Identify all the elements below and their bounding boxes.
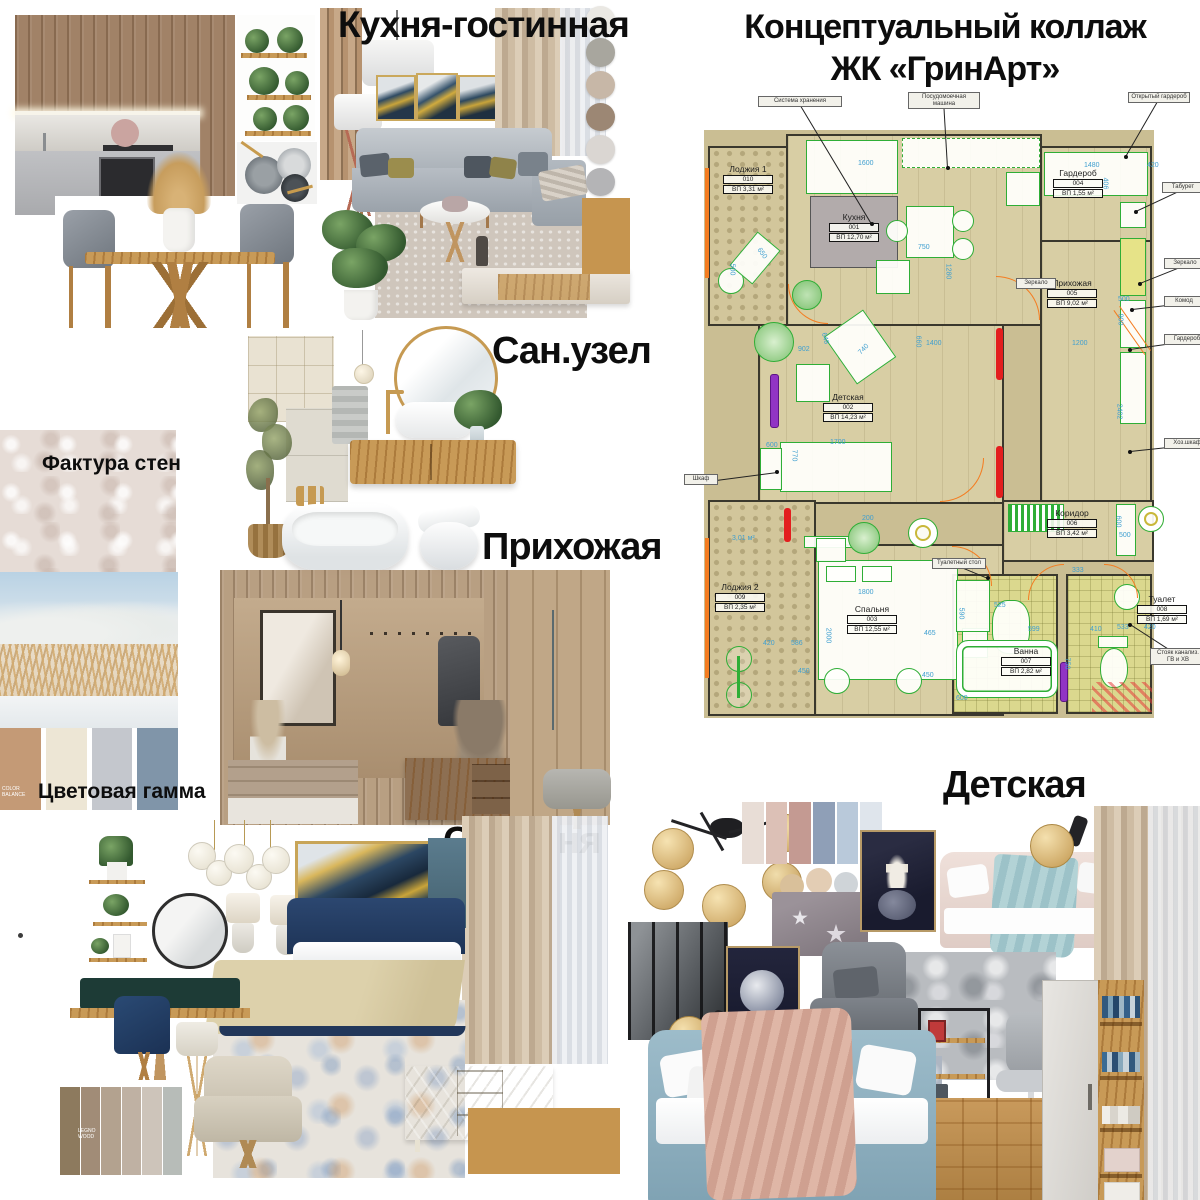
shelf-3 (245, 131, 311, 136)
bathtub-rim (292, 512, 398, 546)
kids-palette-swatch (742, 802, 764, 864)
room-name: Спальня (842, 604, 902, 614)
kids-palette-swatch (837, 802, 859, 864)
vanity-split (430, 444, 432, 480)
blue-daybed (648, 1010, 936, 1200)
dimension-label: 750 (1063, 658, 1070, 670)
plant-4 (285, 71, 309, 95)
plant-5 (253, 107, 277, 131)
plan-kids-plant (754, 322, 794, 362)
bubble-chandeliers (188, 820, 292, 898)
blue-daybed-pillow-3 (855, 1043, 918, 1096)
dimension-label: 1280 (944, 264, 951, 280)
snake-plant-pot (107, 862, 127, 880)
dimension-label: 333 (1072, 567, 1084, 574)
plant-2 (277, 27, 303, 53)
callout-target-dot (1130, 308, 1134, 312)
faucet-spout (386, 390, 404, 394)
dimension-label: 600 (956, 695, 968, 702)
room-name: Лоджия 1 (718, 164, 778, 174)
towel-grey (332, 386, 368, 444)
dimension-label: 420 (1144, 624, 1156, 631)
kitchen-cutting-board (111, 119, 139, 147)
pink-blanket (701, 1007, 857, 1200)
bulb-glass (354, 364, 374, 384)
plan-callout: Зеркало (1016, 278, 1056, 289)
plan-robot-vacuum (1138, 506, 1164, 532)
toilet-bowl (420, 522, 478, 570)
wall-taps-gold (296, 486, 324, 506)
dining-chair-right-legs (247, 262, 289, 328)
tableware-photo (237, 142, 317, 204)
room-area: ВП 14,23 м² (823, 413, 873, 422)
sofa-pillow-olive1 (388, 158, 414, 178)
dimension-label: 1800 (858, 589, 874, 596)
dimension-label: 1600 (858, 160, 874, 167)
room-label: Туалет008ВП 1,69 м² (1132, 594, 1192, 624)
living-palette-circle (586, 71, 615, 99)
room-label: Детская002ВП 14,23 м² (818, 392, 878, 422)
plan-sofa (806, 140, 898, 194)
bedroom-palette-strip (60, 1087, 80, 1175)
tv-console-doors (498, 274, 590, 300)
winter-grass (0, 644, 178, 700)
plan-dining-table (906, 206, 954, 258)
storage-box-white (1104, 1182, 1140, 1200)
wall-hung-toilet (412, 504, 484, 572)
armchair-beige (194, 1056, 302, 1168)
callout-target-dot (1124, 155, 1128, 159)
page-title-line1: Концептуальный коллаж (700, 8, 1190, 47)
toy-2 (806, 868, 832, 894)
ficus-pot (344, 290, 378, 320)
hallway-pendant-globe (332, 650, 350, 676)
plan-hall-wardrobe (1120, 352, 1146, 424)
white-jug (163, 208, 195, 252)
plan-red-hatch (1092, 682, 1152, 712)
ballerina-art (860, 830, 936, 932)
shelf-2 (247, 95, 311, 100)
bed-navy (215, 898, 465, 1038)
room-label: Лоджия 1010ВП 3,31 м² (718, 164, 778, 194)
art-panel-2 (416, 73, 458, 121)
plan-callout: Зеркало (1164, 258, 1200, 269)
plan-tv-stand-kitchen (876, 260, 910, 294)
plan-callout: Хоз.шкаф (1164, 438, 1200, 449)
olive-trunk (266, 478, 270, 528)
color-balance-note: COLOR BALANCE (2, 786, 30, 798)
wood-sample-bedroom (468, 1108, 620, 1174)
room-area: ВП 9,02 м² (1047, 299, 1097, 308)
plan-chair-1 (952, 210, 974, 232)
kids-sheer (1148, 806, 1200, 1200)
dimension-label: 900 (1116, 314, 1123, 326)
shelf-1 (241, 53, 307, 58)
hallway-hooks (370, 632, 480, 635)
dimension-label: 450 (922, 672, 934, 679)
room-area: ВП 2,35 м² (715, 603, 765, 612)
books-row-2 (1102, 1052, 1140, 1072)
dimension-label: 2402 (1115, 404, 1122, 420)
amber-globe-3 (644, 870, 684, 910)
dimension-label: 500 (728, 264, 735, 276)
room-number: 002 (823, 403, 873, 412)
dimension-label: 590 (957, 608, 964, 620)
bedroom-palette-strip (163, 1087, 183, 1175)
sconce-top (1030, 810, 1096, 868)
vanity-body (350, 440, 516, 484)
room-area: ВП 1,69 м² (1137, 615, 1187, 624)
glass-bubble-5 (262, 846, 290, 874)
bedroom-sheer (552, 816, 608, 1064)
section-title-kids: Детская (943, 764, 1086, 807)
callout-target-dot (1128, 450, 1132, 454)
room-area: ВП 1,55 м² (1053, 189, 1103, 198)
plan-toilet-tank (1098, 636, 1128, 648)
books-row-3 (1102, 1106, 1140, 1124)
plan-vacuum-circle (908, 518, 938, 548)
callout-target-dot (1134, 210, 1138, 214)
dimension-label: 420 (1147, 162, 1159, 169)
dimension-label: 1400 (926, 340, 942, 347)
plan-bedroom-plant (848, 522, 880, 554)
hallway-pendant-1 (340, 600, 342, 655)
living-palette-circle (586, 135, 615, 163)
kitchen-cooktop (103, 145, 173, 151)
room-name: Гардероб (1048, 168, 1108, 178)
legno-wood-note: LEGNO WOOD (78, 1128, 102, 1140)
plant-6 (283, 105, 309, 131)
dimension-label: 600 (766, 442, 778, 449)
gold-spoon-icon (240, 141, 263, 158)
floor-plan: Лоджия 1010ВП 3,31 м²Кухня001ВП 12,70 м²… (700, 108, 1168, 720)
room-number: 004 (1053, 179, 1103, 188)
plant-3 (249, 67, 279, 95)
room-name: Кухня (824, 212, 884, 222)
plan-radiator-3 (784, 508, 791, 542)
plan-callout: Гардероб (1164, 334, 1200, 345)
section-title-bathroom: Сан.узел (492, 330, 651, 373)
blue-throw (989, 854, 1078, 958)
callout-target-dot (1138, 282, 1142, 286)
books-row-1 (1102, 996, 1140, 1018)
room-name: Коридор (1042, 508, 1102, 518)
dimension-label: 2000 (824, 628, 831, 644)
navy-chair (114, 996, 170, 1054)
living-palette-circle (586, 168, 615, 196)
plan-dressing-table (816, 538, 846, 562)
white-pot-jar (113, 934, 131, 958)
plan-chair-3 (886, 220, 908, 242)
bedroom-shelf-1 (89, 880, 145, 884)
concept-collage: Концептуальный коллаж ЖК «ГринАрт» (0, 0, 1200, 1200)
room-number: 006 (1047, 519, 1097, 528)
room-label: Ванна007ВП 2,82 м² (996, 646, 1056, 676)
callout-target-dot (1128, 623, 1132, 627)
plan-bed-pillow-2 (862, 566, 892, 582)
living-palette-circle (586, 103, 615, 131)
bathroom-vanity (350, 440, 516, 490)
dining-chair-left-legs (69, 266, 111, 328)
loggia1-window-frame (705, 168, 709, 278)
art-panel-3 (458, 75, 498, 121)
plan-bed-bench-1 (824, 668, 850, 694)
plan-callout: Стояк канализ. ГВ и ХВ (1150, 648, 1200, 665)
hallway-table-lamp (452, 700, 508, 764)
armchair-seat (194, 1096, 302, 1142)
bedroom-palette-strip (142, 1087, 162, 1175)
grey-armchair-pillow (833, 966, 880, 1000)
sofa-pillow-dark2 (464, 156, 492, 178)
dimension-label: 600 (1114, 516, 1121, 528)
room-number: 007 (1001, 657, 1051, 666)
plant-1 (245, 29, 269, 53)
pouf-cushion (543, 769, 611, 809)
section-title-kitchen-living: Кухня-гостинная (338, 4, 629, 46)
floor-lamp2-shade (176, 1022, 218, 1056)
dining-set-photo (55, 196, 305, 338)
room-area: ВП 3,42 м² (1047, 529, 1097, 538)
dimension-label: 599 (1028, 626, 1040, 633)
pendant-bulb (352, 330, 374, 388)
plan-callout: Открытый гардероб (1128, 92, 1190, 103)
callout-target-dot (986, 576, 990, 580)
bathtub (282, 504, 408, 574)
section-title-color-scheme: Цветовая гамма (38, 780, 206, 804)
art-panel-1 (376, 75, 416, 121)
succulent-1 (91, 938, 109, 954)
dimension-label: 902 (798, 346, 810, 353)
dimension-label: 750 (918, 244, 930, 251)
kids-palette-swatch (789, 802, 811, 864)
dining-table-legs (107, 262, 253, 328)
bedroom-shelf-2 (93, 922, 147, 926)
books-shelf-line-4 (1100, 1174, 1142, 1178)
dimension-label: 586 (791, 640, 803, 647)
kids-palette-swatch (813, 802, 835, 864)
vanity-plant-leaves (454, 390, 502, 430)
plan-bed-pillow-1 (826, 566, 856, 582)
room-name: Ванна (996, 646, 1056, 656)
bedroom-palette-strip (122, 1087, 142, 1175)
ficus-leaves-3 (332, 248, 388, 288)
plan-callout: Комод (1164, 296, 1200, 307)
wheat-bouquet (147, 152, 211, 214)
coffee-table-decor (442, 196, 468, 212)
room-area: ВП 12,55 м² (847, 625, 897, 634)
room-name: Лоджия 2 (710, 582, 770, 592)
pink-daybed-pillow-1 (946, 863, 990, 898)
room-label: Спальня003ВП 12,55 м² (842, 604, 902, 634)
dried-flowers-vase (250, 700, 286, 766)
armchair-legs (208, 1140, 288, 1168)
plan-radiator-1 (996, 328, 1003, 380)
dimension-label: 500 (1118, 296, 1130, 303)
ballerina-figure (886, 854, 908, 888)
room-label: Гардероб004ВП 1,55 м² (1048, 168, 1108, 198)
section-title-hallway: Прихожая (482, 526, 662, 569)
dimension-label: 660 (914, 336, 921, 348)
room-area: ВП 2,82 м² (1001, 667, 1051, 676)
callout-target-dot (946, 166, 950, 170)
art-triptych (376, 73, 494, 119)
moon-circle (740, 970, 784, 1014)
callout-target-dot (1128, 348, 1132, 352)
plan-bath-cabinet (956, 580, 990, 632)
loggia2-window-frame (705, 538, 709, 678)
room-name: Туалет (1132, 594, 1192, 604)
sofa-pillow-olive2 (489, 156, 518, 179)
room-number: 010 (723, 175, 773, 184)
section-title-wall-texture: Фактура стен (42, 452, 181, 476)
plan-callout: Шкаф (684, 474, 718, 485)
books-shelf-line-2 (1100, 1076, 1142, 1080)
plan-kids-closet (760, 448, 782, 490)
bedroom-shelves (85, 836, 151, 984)
room-area: ВП 12,70 м² (829, 233, 879, 242)
tv-console-vase (476, 236, 488, 266)
plan-kitchen-counter (902, 138, 1040, 168)
winter-snow (0, 696, 178, 728)
kids-wardrobe (1042, 980, 1144, 1200)
floor-lamp-shade (334, 94, 382, 130)
winter-photo (0, 572, 178, 728)
page-title-line2: ЖК «ГринАрт» (700, 50, 1190, 89)
books-shelf-line-1 (1100, 1022, 1142, 1026)
kitchen-faucet-icon (43, 133, 46, 151)
plan-radiator-2 (996, 446, 1003, 498)
callout-target-dot (870, 222, 874, 226)
dimension-label: 465 (924, 630, 936, 637)
plan-callout: Посудомоечная машина (908, 92, 980, 109)
plan-hall-cabinet-yellow (1120, 238, 1146, 296)
moss-bowl (103, 894, 129, 916)
faucet-stem (386, 390, 390, 434)
bedroom-palette-strip (101, 1087, 121, 1175)
dimension-label: 200 (862, 515, 874, 522)
dimension-label: 420 (763, 640, 775, 647)
room-number: 008 (1137, 605, 1187, 614)
bed-frame-edge (218, 1026, 465, 1036)
dimension-label: 770 (790, 450, 797, 462)
wall-speck (18, 933, 23, 938)
dimension-label: 1700 (830, 439, 846, 446)
dimension-label: 450 (798, 668, 810, 675)
room-number: 009 (715, 593, 765, 602)
plan-bike-frame (737, 656, 740, 698)
ficus-plant (316, 206, 414, 324)
callout-target-dot (775, 470, 779, 474)
dimension-label: 410 (1090, 626, 1102, 633)
plan-stool (1120, 202, 1146, 228)
wardrobe-handle (1088, 1084, 1092, 1110)
plan-callout: Система хранения (758, 96, 842, 107)
wood-sample-living (582, 198, 630, 274)
plan-callout: Туалетный стол (932, 558, 986, 569)
room-name: Детская (818, 392, 878, 402)
plan-hoz-closet (1116, 504, 1136, 556)
plant-shelves-photo (237, 15, 315, 141)
navy-chair-legs (118, 1052, 170, 1080)
plan-fridge (1006, 172, 1040, 206)
dimension-label: 3,01 м² (732, 535, 755, 542)
kids-palette-swatch (766, 802, 788, 864)
room-area: ВП 3,31 м² (723, 185, 773, 194)
dimension-label: 525 (994, 602, 1006, 609)
room-label: Лоджия 2009ВП 2,35 м² (710, 582, 770, 612)
bulb-cord (362, 330, 363, 366)
room-label: Кухня001ВП 12,70 м² (824, 212, 884, 242)
room-number: 005 (1047, 289, 1097, 298)
dimension-label: 1200 (1072, 340, 1088, 347)
storage-box-pink (1104, 1148, 1140, 1172)
bedroom-shelf-3 (89, 958, 147, 962)
sconce-top-globe (1030, 824, 1074, 868)
dimension-label: 500 (1119, 532, 1131, 539)
plan-purple-panel-1 (770, 374, 779, 428)
plan-callout: Табурет (1162, 182, 1200, 193)
plan-chair-2 (952, 238, 974, 260)
sofa-pillow-dark1 (359, 152, 391, 177)
amber-globe-1 (652, 828, 694, 870)
bedroom-curtains (462, 816, 560, 1064)
wardrobe-handle-1 (552, 610, 554, 730)
books-shelf-line-3 (1100, 1128, 1142, 1132)
plan-bed-bench-2 (896, 668, 922, 694)
ballerina-moon (878, 890, 916, 920)
dimension-label: 533 (1117, 624, 1129, 631)
room-number: 003 (847, 615, 897, 624)
room-label: Коридор006ВП 3,42 м² (1042, 508, 1102, 538)
